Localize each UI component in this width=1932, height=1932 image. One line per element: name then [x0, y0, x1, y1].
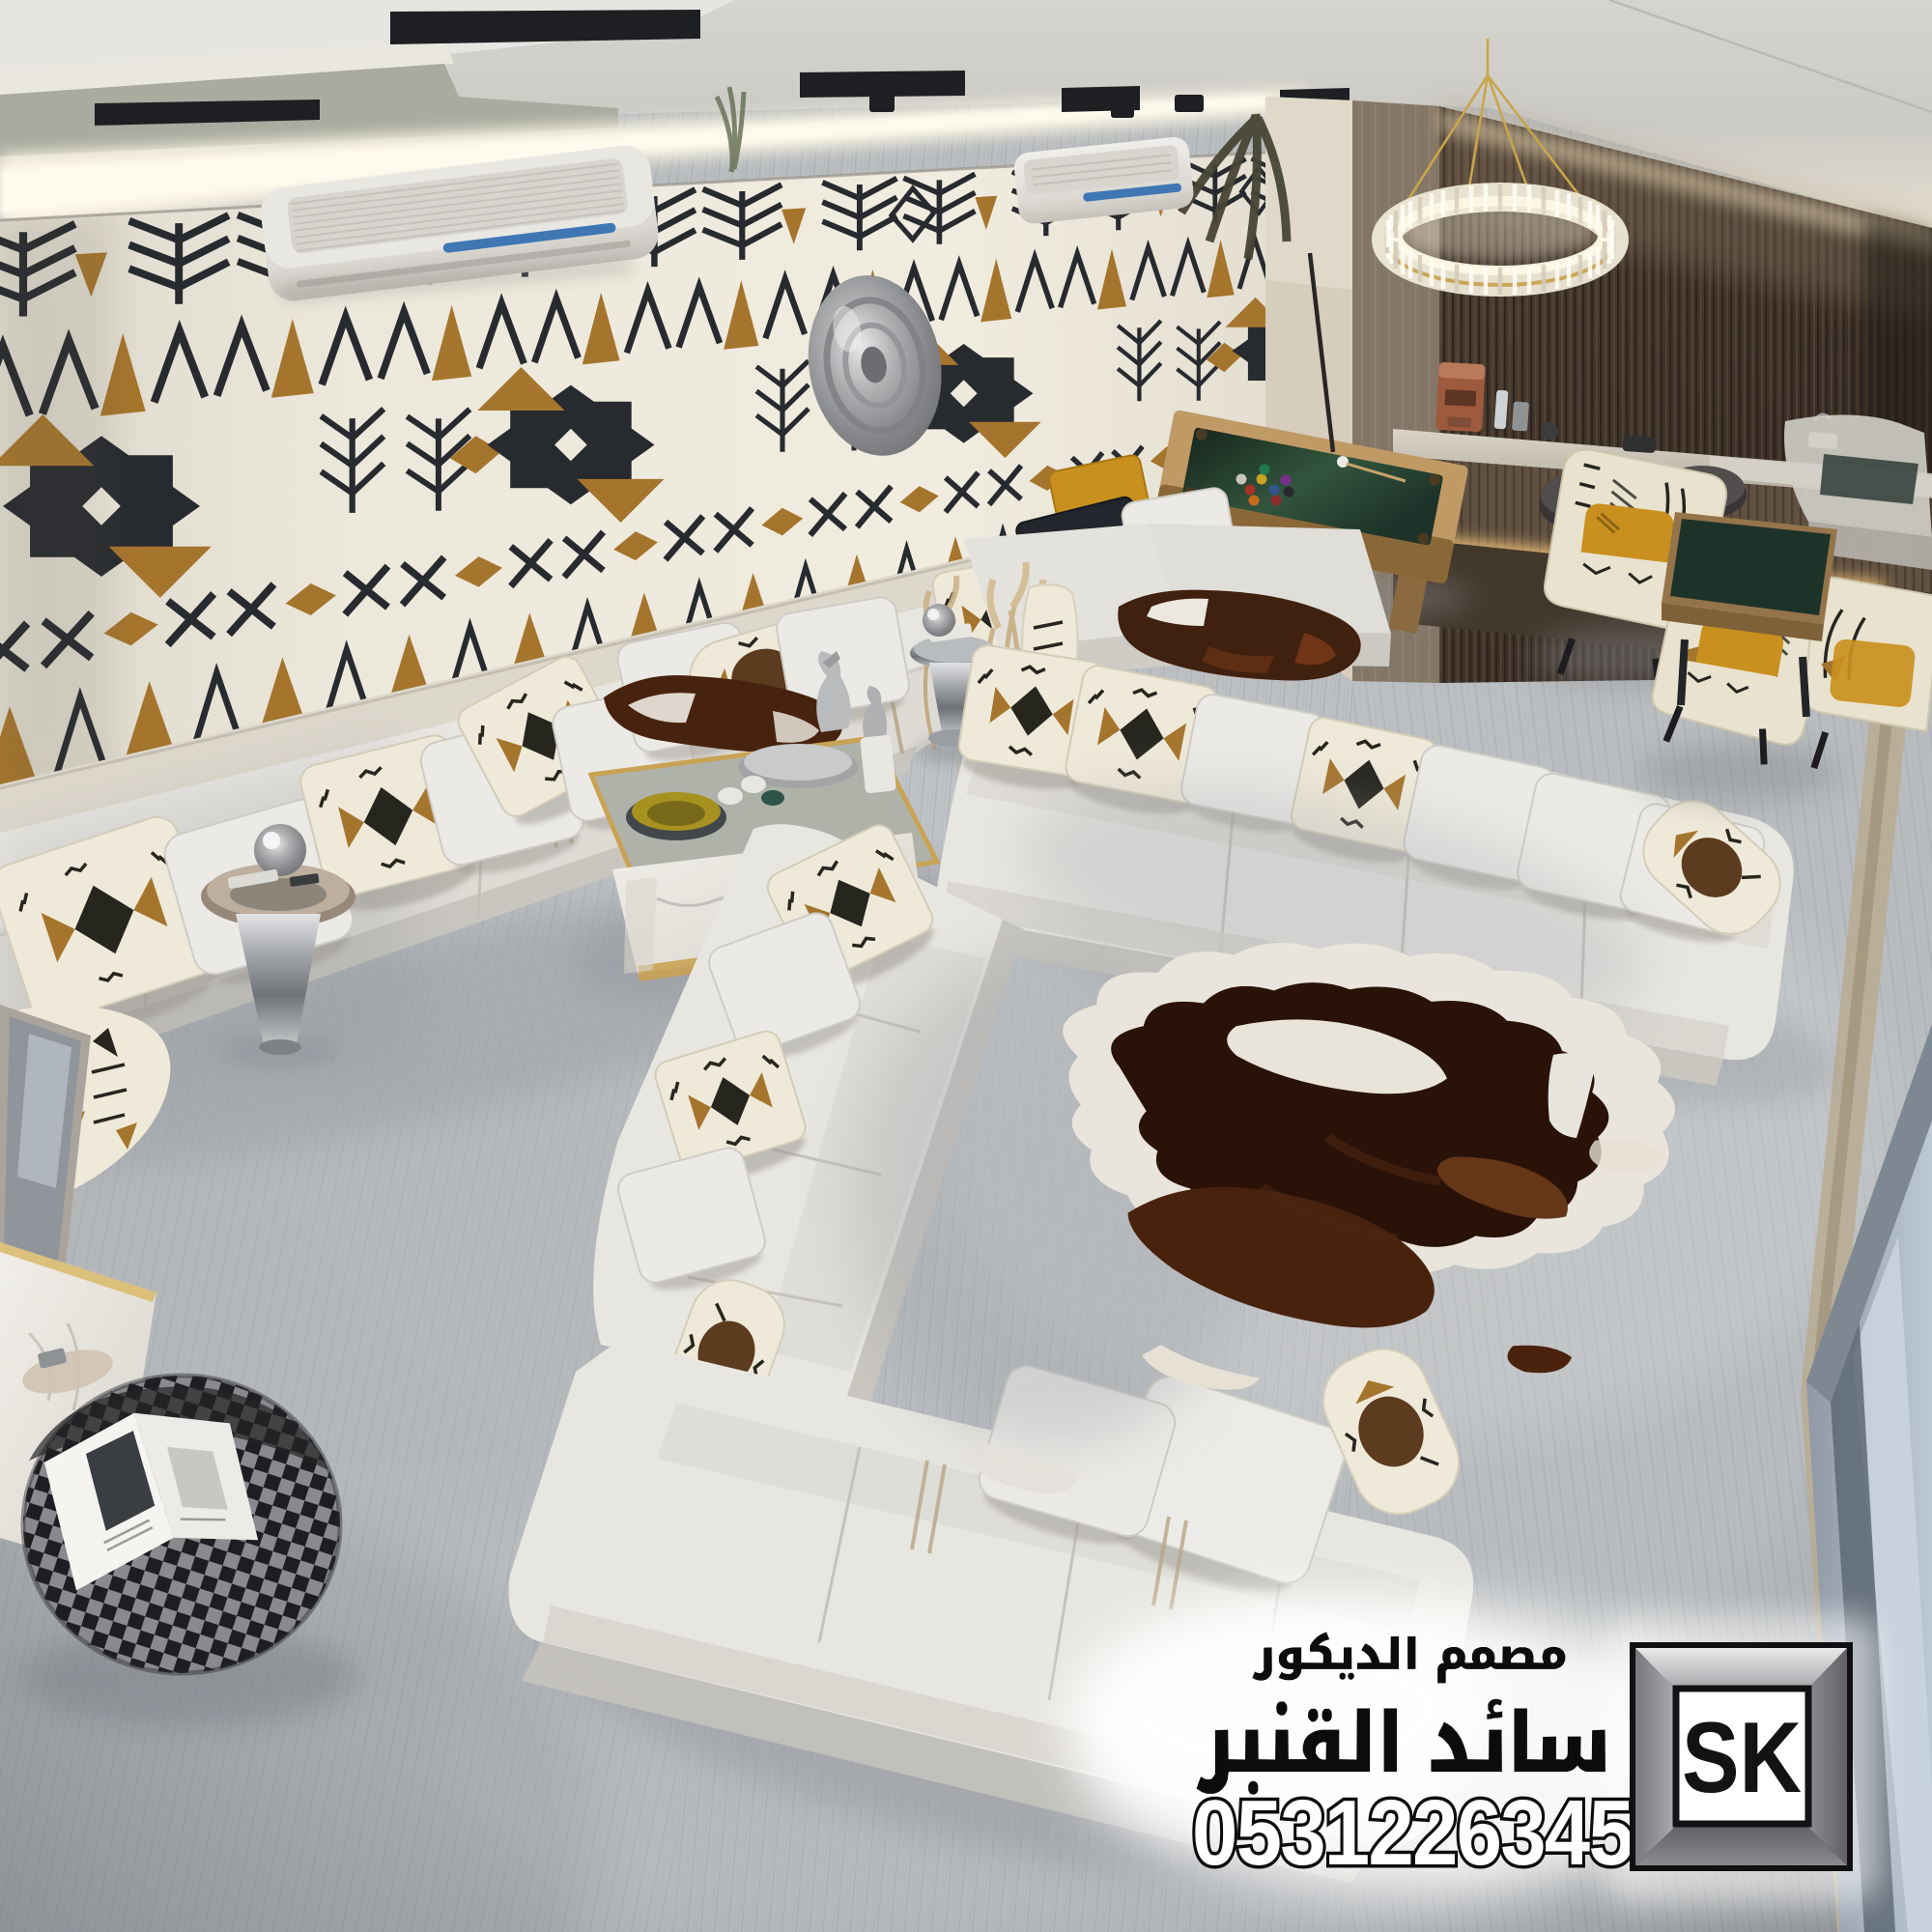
svg-text:0531226345: 0531226345: [1192, 1781, 1633, 1885]
svg-text:SK: SK: [1682, 1702, 1802, 1814]
